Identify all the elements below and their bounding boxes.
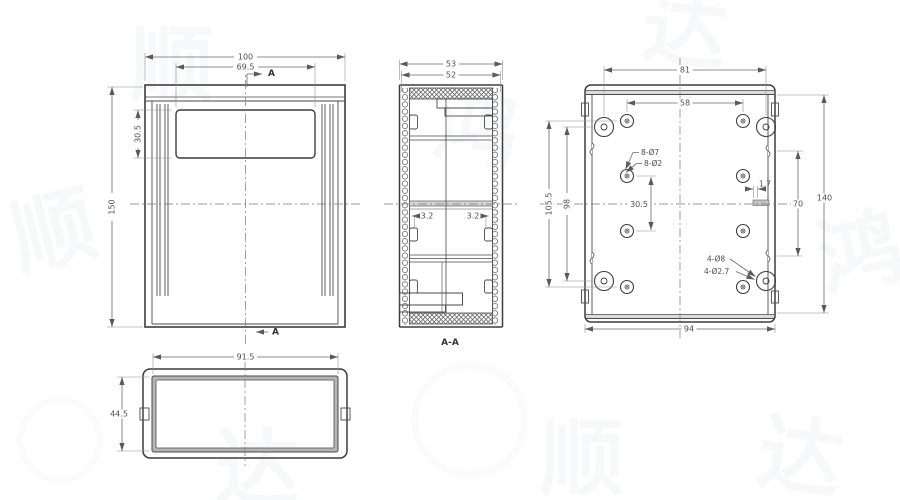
watermark-char: 达 (752, 403, 849, 500)
top-view: 91.5 44.5 (109, 353, 351, 467)
dim-section-inner-depth: 52 (446, 71, 456, 80)
dim-back-notch: 1.7 (759, 180, 771, 189)
section-top-plate (410, 88, 493, 99)
dim-back-rib-span: 70 (793, 200, 803, 209)
callout-hole-inner: 8-Ø2 (644, 159, 662, 168)
cad-drawing-canvas: 顺 达 鸿 顺 达 鸿 顺 达 (0, 0, 900, 500)
dim-back-hole-span-height: 105.5 (545, 193, 554, 216)
dim-section-wall-left: 3.2 (421, 212, 434, 221)
drawing-sheet: 顺 达 鸿 顺 达 鸿 顺 达 (0, 0, 900, 500)
watermark-char: 顺 (130, 17, 214, 115)
back-side-notch (753, 200, 769, 206)
dim-front-panel-width: 69.5 (237, 63, 255, 72)
section-label-a-bottom: A (272, 328, 279, 338)
dim-back-overall-height: 140 (817, 194, 832, 203)
watermark-char: 顺 (1, 174, 106, 289)
section-label-a-top: A (268, 69, 275, 79)
dim-back-boss-span-height: 98 (563, 199, 572, 209)
dim-back-hole-span-width: 58 (680, 99, 690, 108)
dim-top-inner-height: 44.5 (110, 410, 128, 419)
dim-section-wall-right: 3.2 (467, 212, 480, 221)
callout-boss-outer: 4-Ø8 (707, 255, 725, 264)
watermark-char: 达 (215, 420, 299, 500)
front-view: 100 69.5 30.5 150 A A (107, 53, 361, 347)
callout-hole-outer: 8-Ø7 (641, 148, 659, 157)
back-hole-callout: 8-Ø7 8-Ø2 (626, 148, 663, 173)
watermark-char: 鸿 (809, 196, 900, 309)
front-view-ribs (157, 104, 333, 296)
dim-section-outer-depth: 53 (446, 60, 456, 69)
dim-back-bottom-width: 94 (684, 325, 694, 334)
back-dimension-lines (549, 70, 824, 329)
dim-front-panel-height: 30.5 (134, 125, 143, 143)
back-centerlines (540, 58, 800, 338)
watermark-swirl (20, 400, 100, 480)
back-boss-callout: 4-Ø8 4-Ø2.7 (704, 255, 756, 280)
section-marker-bottom: A (256, 328, 279, 338)
dim-front-overall-width: 100 (238, 53, 253, 62)
section-bottom-plate (410, 313, 493, 324)
section-view-label: A-A (441, 338, 459, 348)
back-view: 81 58 105.5 98 30.5 1.7 70 140 94 8-Ø7 8… (540, 58, 833, 338)
dim-back-boss-span-width: 81 (680, 66, 690, 75)
dim-back-center-holes: 30.5 (630, 200, 648, 209)
watermark-char: 顺 (540, 410, 624, 500)
dim-top-inner-width: 91.5 (237, 353, 255, 362)
callout-boss-inner: 4-Ø2.7 (704, 267, 730, 276)
watermark-swirl (415, 365, 525, 475)
dim-front-overall-height: 150 (108, 199, 117, 214)
